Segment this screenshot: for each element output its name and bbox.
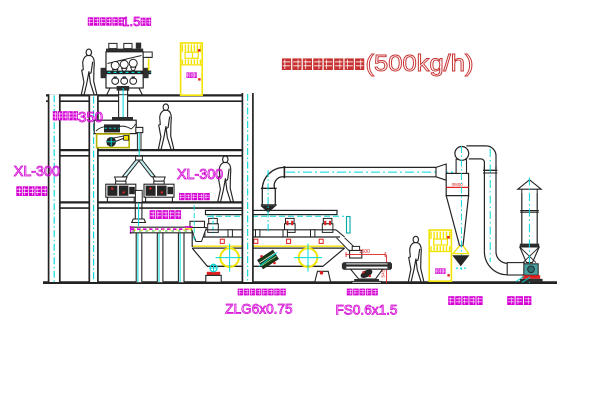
svg-text:FS0.6x1.5: FS0.6x1.5 bbox=[336, 302, 398, 317]
svg-text:XL-300: XL-300 bbox=[177, 167, 223, 183]
svg-text:350: 350 bbox=[78, 109, 103, 126]
svg-text:1.5: 1.5 bbox=[122, 14, 140, 29]
svg-text:XL-300: XL-300 bbox=[14, 164, 60, 180]
svg-text:1500: 1500 bbox=[359, 249, 370, 255]
svg-text:(500kg/h): (500kg/h) bbox=[366, 50, 474, 76]
svg-text:ZLG6x0.75: ZLG6x0.75 bbox=[225, 301, 292, 316]
